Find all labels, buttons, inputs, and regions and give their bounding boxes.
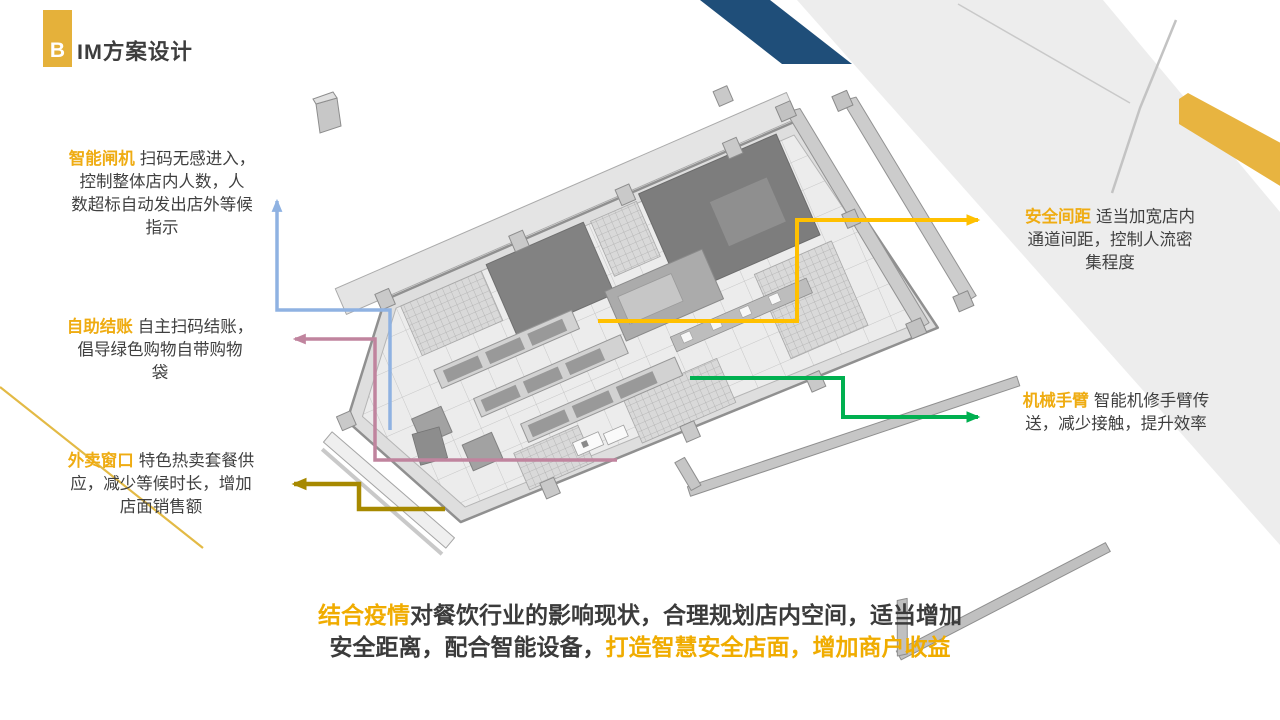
summary-line-1-text: 对餐饮行业的影响现状，合理规划店内空间，适当增加	[410, 602, 962, 628]
title-badge: B	[43, 10, 72, 67]
title-badge-letter: B	[50, 39, 65, 63]
callout-takeout-window-keyword: 外卖窗口	[68, 452, 134, 470]
summary-line-1-highlight: 结合疫情	[318, 602, 410, 628]
summary-text: 结合疫情对餐饮行业的影响现状，合理规划店内空间，适当增加 安全距离，配合智能设备…	[0, 600, 1280, 663]
callout-self-checkout: 自助结账自主扫码结账，倡导绿色购物自带购物袋	[44, 316, 276, 385]
callout-takeout-window: 外卖窗口特色热卖套餐供应，减少等候时长，增加店面销售额	[36, 450, 286, 519]
callout-self-checkout-keyword: 自助结账	[67, 318, 133, 336]
callout-safe-distance-keyword: 安全间距	[1025, 208, 1091, 226]
callout-robot-arm: 机械手臂智能机修手臂传送，减少接触，提升效率	[992, 390, 1240, 436]
page-title: IM方案设计	[77, 35, 193, 66]
callout-safe-distance: 安全间距适当加宽店内通道间距，控制人流密集程度	[993, 206, 1227, 275]
summary-line-2: 安全距离，配合智能设备，打造智慧安全店面，增加商户收益	[0, 632, 1280, 664]
summary-line-2-highlight: 打造智慧安全店面，增加商户收益	[606, 634, 951, 660]
callout-smart-gate: 智能闸机扫码无感进入，控制整体店内人数，人数超标自动发出店外等候指示	[46, 148, 278, 240]
detached-cube	[313, 92, 341, 133]
summary-line-2-text: 安全距离，配合智能设备，	[330, 634, 606, 660]
slide: B IM方案设计 智能闸机扫码无感进入，控制整体店内人数，人数超标自动发出店外等…	[0, 0, 1280, 720]
callout-robot-arm-keyword: 机械手臂	[1023, 392, 1089, 410]
summary-line-1: 结合疫情对餐饮行业的影响现状，合理规划店内空间，适当增加	[0, 600, 1280, 632]
callout-smart-gate-keyword: 智能闸机	[69, 150, 135, 168]
